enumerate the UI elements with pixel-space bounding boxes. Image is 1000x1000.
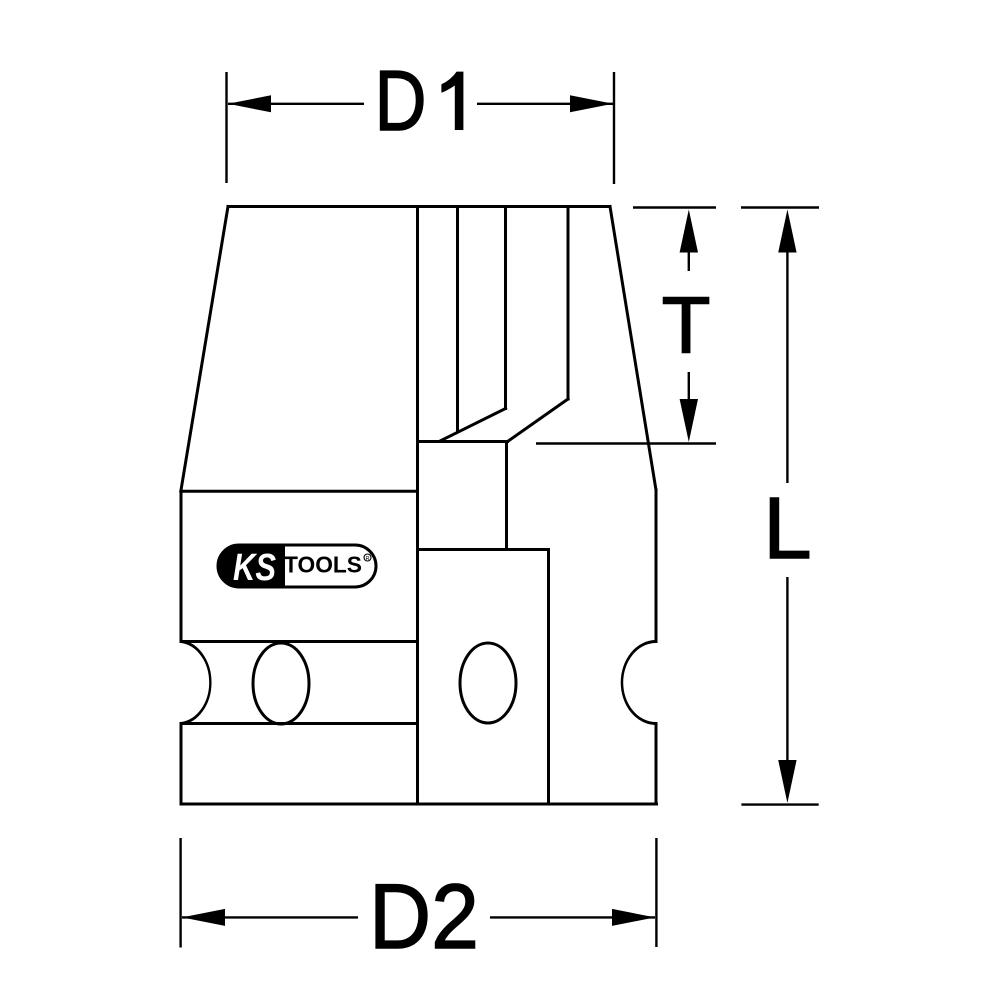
svg-text:T: T (662, 281, 711, 370)
svg-text:D2: D2 (369, 866, 479, 968)
svg-text:R: R (366, 556, 370, 562)
svg-text:KS: KS (233, 547, 276, 589)
svg-text:D: D (375, 54, 427, 149)
svg-text:TOOLS: TOOLS (284, 552, 362, 578)
svg-text:L: L (763, 480, 811, 577)
